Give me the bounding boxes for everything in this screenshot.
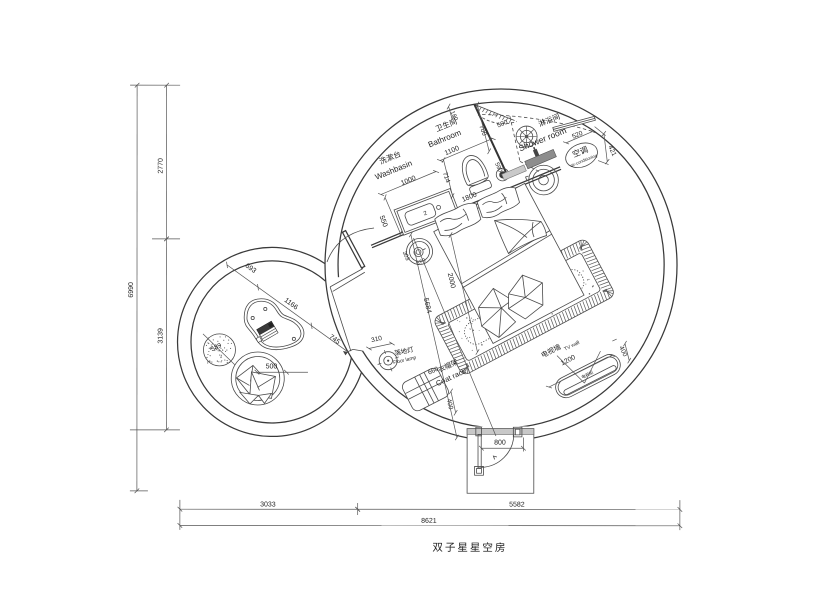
svg-text:800: 800 xyxy=(494,440,506,447)
svg-text:3139: 3139 xyxy=(157,328,164,344)
svg-text:8621: 8621 xyxy=(421,518,437,525)
svg-text:2770: 2770 xyxy=(158,158,165,174)
svg-text:5582: 5582 xyxy=(509,502,525,509)
svg-text:500: 500 xyxy=(266,363,278,370)
svg-text:6990: 6990 xyxy=(128,282,135,298)
svg-text:双子星星空房: 双子星星空房 xyxy=(432,541,507,554)
svg-text:3033: 3033 xyxy=(260,501,276,508)
